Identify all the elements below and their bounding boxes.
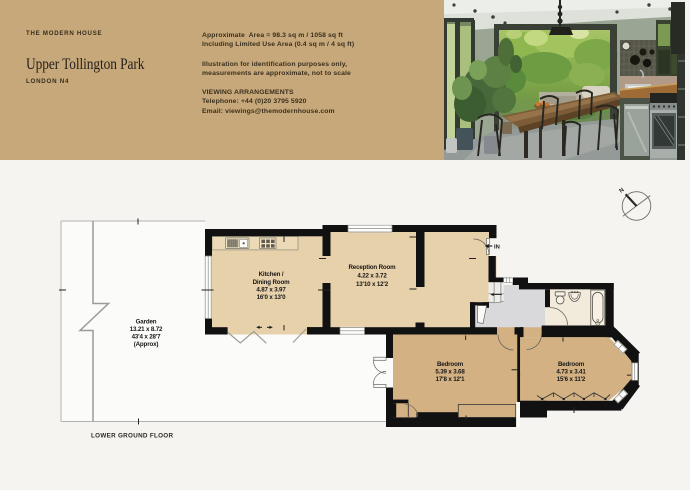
svg-text:13'10 x 12'2: 13'10 x 12'2	[356, 281, 389, 288]
svg-text:Bedroom: Bedroom	[558, 361, 585, 368]
svg-text:Reception Room: Reception Room	[348, 264, 396, 271]
svg-text:4.73 x 3.41: 4.73 x 3.41	[556, 369, 586, 376]
svg-text:4.22 x 3.72: 4.22 x 3.72	[357, 273, 387, 280]
svg-text:IN: IN	[494, 244, 500, 250]
svg-text:5.39 x 3.68: 5.39 x 3.68	[435, 369, 465, 376]
svg-text:15'6 x 11'2: 15'6 x 11'2	[557, 376, 586, 383]
svg-text:Bedroom: Bedroom	[437, 361, 464, 368]
svg-text:4.87 x 3.97: 4.87 x 3.97	[256, 287, 286, 294]
svg-text:Kitchen /: Kitchen /	[259, 271, 284, 278]
svg-text:(Approx): (Approx)	[134, 341, 159, 348]
svg-text:17'8 x 12'1: 17'8 x 12'1	[436, 376, 466, 383]
svg-text:43'4 x 28'7: 43'4 x 28'7	[132, 334, 162, 341]
svg-text:16'0 x 13'0: 16'0 x 13'0	[257, 294, 287, 301]
svg-text:LOWER GROUND FLOOR: LOWER GROUND FLOOR	[91, 433, 174, 440]
svg-text:Dining Room: Dining Room	[253, 279, 290, 286]
svg-text:Garden: Garden	[136, 319, 157, 326]
svg-text:13.21 x 8.72: 13.21 x 8.72	[130, 326, 163, 333]
